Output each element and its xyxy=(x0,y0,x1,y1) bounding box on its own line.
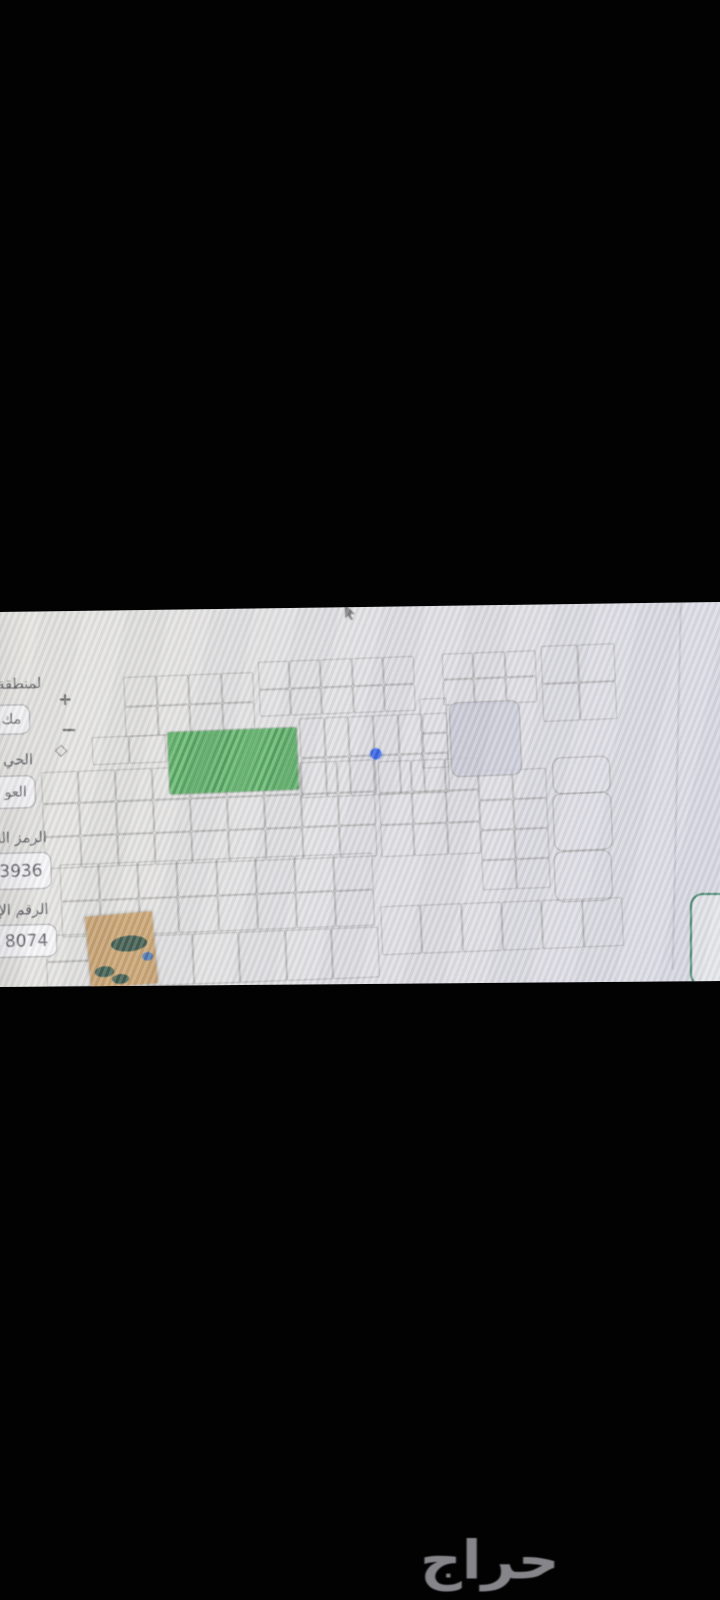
additional-number-field-label: الرقم الإ xyxy=(0,902,49,919)
postal-code-input-value: 3936 xyxy=(0,860,43,881)
screenshot-stage: + − ◇ لمنطقة مك الحي العو الرمز الب 3936 xyxy=(0,0,720,1600)
district-field-label: الحي xyxy=(0,752,33,769)
postal-code-field-label: الرمز الب xyxy=(0,830,47,847)
map-area[interactable]: + − ◇ لمنطقة مك الحي العو الرمز الب 3936 xyxy=(0,602,720,987)
region-input[interactable]: مك xyxy=(0,704,30,735)
photo-band: + − ◇ لمنطقة مك الحي العو الرمز الب 3936 xyxy=(0,602,720,987)
postal-code-input[interactable]: 3936 xyxy=(0,852,52,891)
form-column: لمنطقة مك الحي العو الرمز الب 3936 الرقم… xyxy=(0,587,720,988)
additional-number-input[interactable]: 8074 xyxy=(0,924,58,959)
additional-number-input-value: 8074 xyxy=(5,930,49,951)
region-input-value: مك xyxy=(2,711,22,727)
haraj-watermark: حراج xyxy=(420,1529,710,1592)
district-input[interactable]: العو xyxy=(0,775,36,810)
region-field-label: لمنطقة xyxy=(0,676,42,693)
mouse-cursor-icon xyxy=(344,604,358,621)
district-input-value: العو xyxy=(4,784,27,800)
